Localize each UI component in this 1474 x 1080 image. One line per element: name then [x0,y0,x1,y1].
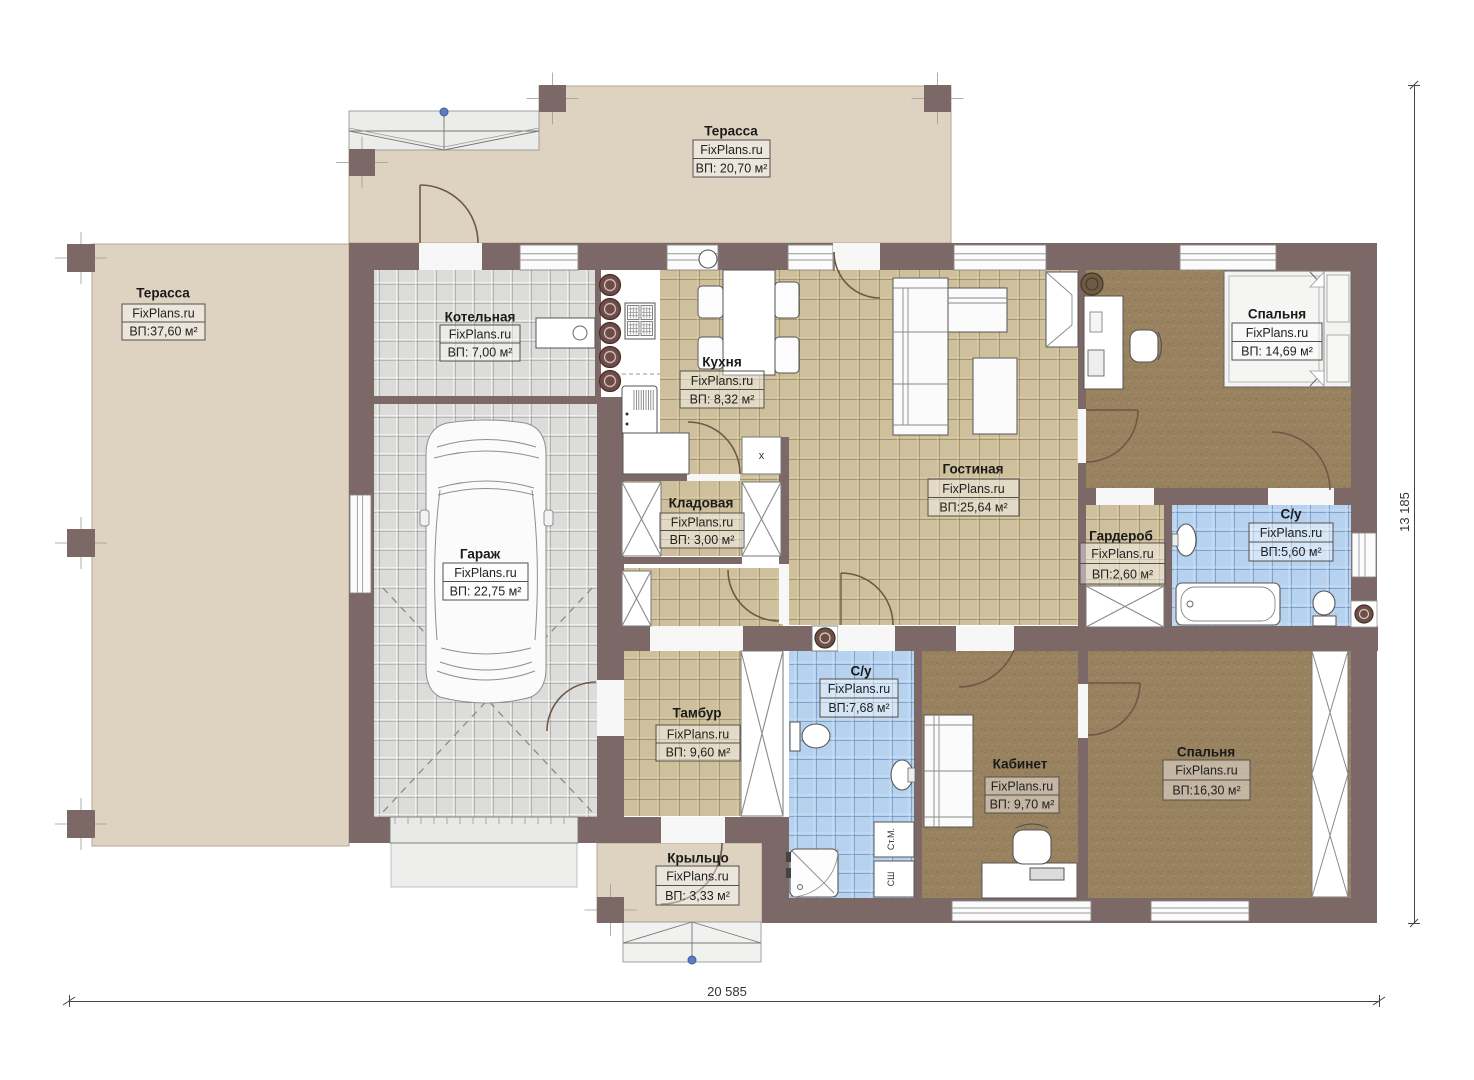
svg-text:FixPlans.ru: FixPlans.ru [1175,764,1238,778]
svg-text:ВП: 22,75 м²: ВП: 22,75 м² [450,584,522,598]
svg-text:ВП:37,60 м²: ВП:37,60 м² [129,325,197,339]
svg-text:С/у: С/у [850,664,872,679]
svg-text:FixPlans.ru: FixPlans.ru [132,307,195,321]
svg-text:Гараж: Гараж [460,547,501,562]
svg-text:Кладовая: Кладовая [669,496,734,511]
svg-text:Ст.М.: Ст.М. [886,828,896,850]
svg-text:ВП: 20,70 м²: ВП: 20,70 м² [696,161,768,175]
svg-text:С/у: С/у [1280,507,1302,522]
svg-text:ВП: 14,69 м²: ВП: 14,69 м² [1241,344,1313,358]
svg-text:Спальня: Спальня [1248,307,1306,322]
svg-text:13 185: 13 185 [1397,492,1412,532]
svg-text:ВП:5,60 м²: ВП:5,60 м² [1260,545,1321,559]
svg-text:FixPlans.ru: FixPlans.ru [828,682,891,696]
svg-text:FixPlans.ru: FixPlans.ru [991,780,1054,794]
svg-text:FixPlans.ru: FixPlans.ru [666,869,729,883]
svg-text:ВП:25,64 м²: ВП:25,64 м² [939,500,1007,514]
svg-text:Тамбур: Тамбур [673,706,722,721]
svg-text:Кабинет: Кабинет [993,757,1048,772]
svg-text:FixPlans.ru: FixPlans.ru [942,482,1005,496]
svg-text:Котельная: Котельная [445,310,516,325]
svg-text:Крыльцо: Крыльцо [667,851,728,866]
svg-text:ВП: 3,33 м²: ВП: 3,33 м² [665,889,730,903]
svg-text:x: x [759,450,765,462]
svg-text:FixPlans.ru: FixPlans.ru [700,143,763,157]
svg-text:ВП:7,68 м²: ВП:7,68 м² [828,701,889,715]
svg-text:ВП: 8,32 м²: ВП: 8,32 м² [690,392,755,406]
svg-text:FixPlans.ru: FixPlans.ru [1246,326,1309,340]
svg-text:FixPlans.ru: FixPlans.ru [667,728,730,742]
svg-text:СШ: СШ [886,872,896,887]
svg-text:20 585: 20 585 [707,984,747,999]
svg-text:Кухня: Кухня [702,355,741,370]
svg-text:Гостиная: Гостиная [942,462,1003,477]
svg-text:FixPlans.ru: FixPlans.ru [671,515,734,529]
svg-text:Гардероб: Гардероб [1089,529,1153,544]
svg-text:ВП: 9,70 м²: ВП: 9,70 м² [990,798,1055,812]
svg-text:ВП:2,60 м²: ВП:2,60 м² [1092,567,1153,581]
svg-text:Терасса: Терасса [136,286,190,301]
svg-text:FixPlans.ru: FixPlans.ru [454,566,517,580]
svg-text:Терасса: Терасса [704,124,758,139]
svg-text:FixPlans.ru: FixPlans.ru [1260,526,1323,540]
svg-text:ВП:16,30 м²: ВП:16,30 м² [1172,784,1240,798]
svg-text:ВП: 3,00 м²: ВП: 3,00 м² [670,533,735,547]
svg-text:ВП: 7,00 м²: ВП: 7,00 м² [448,346,513,360]
svg-text:FixPlans.ru: FixPlans.ru [691,374,754,388]
svg-text:ВП: 9,60 м²: ВП: 9,60 м² [666,746,731,760]
svg-text:FixPlans.ru: FixPlans.ru [1091,547,1154,561]
svg-text:Спальня: Спальня [1177,745,1235,760]
svg-text:FixPlans.ru: FixPlans.ru [449,328,512,342]
